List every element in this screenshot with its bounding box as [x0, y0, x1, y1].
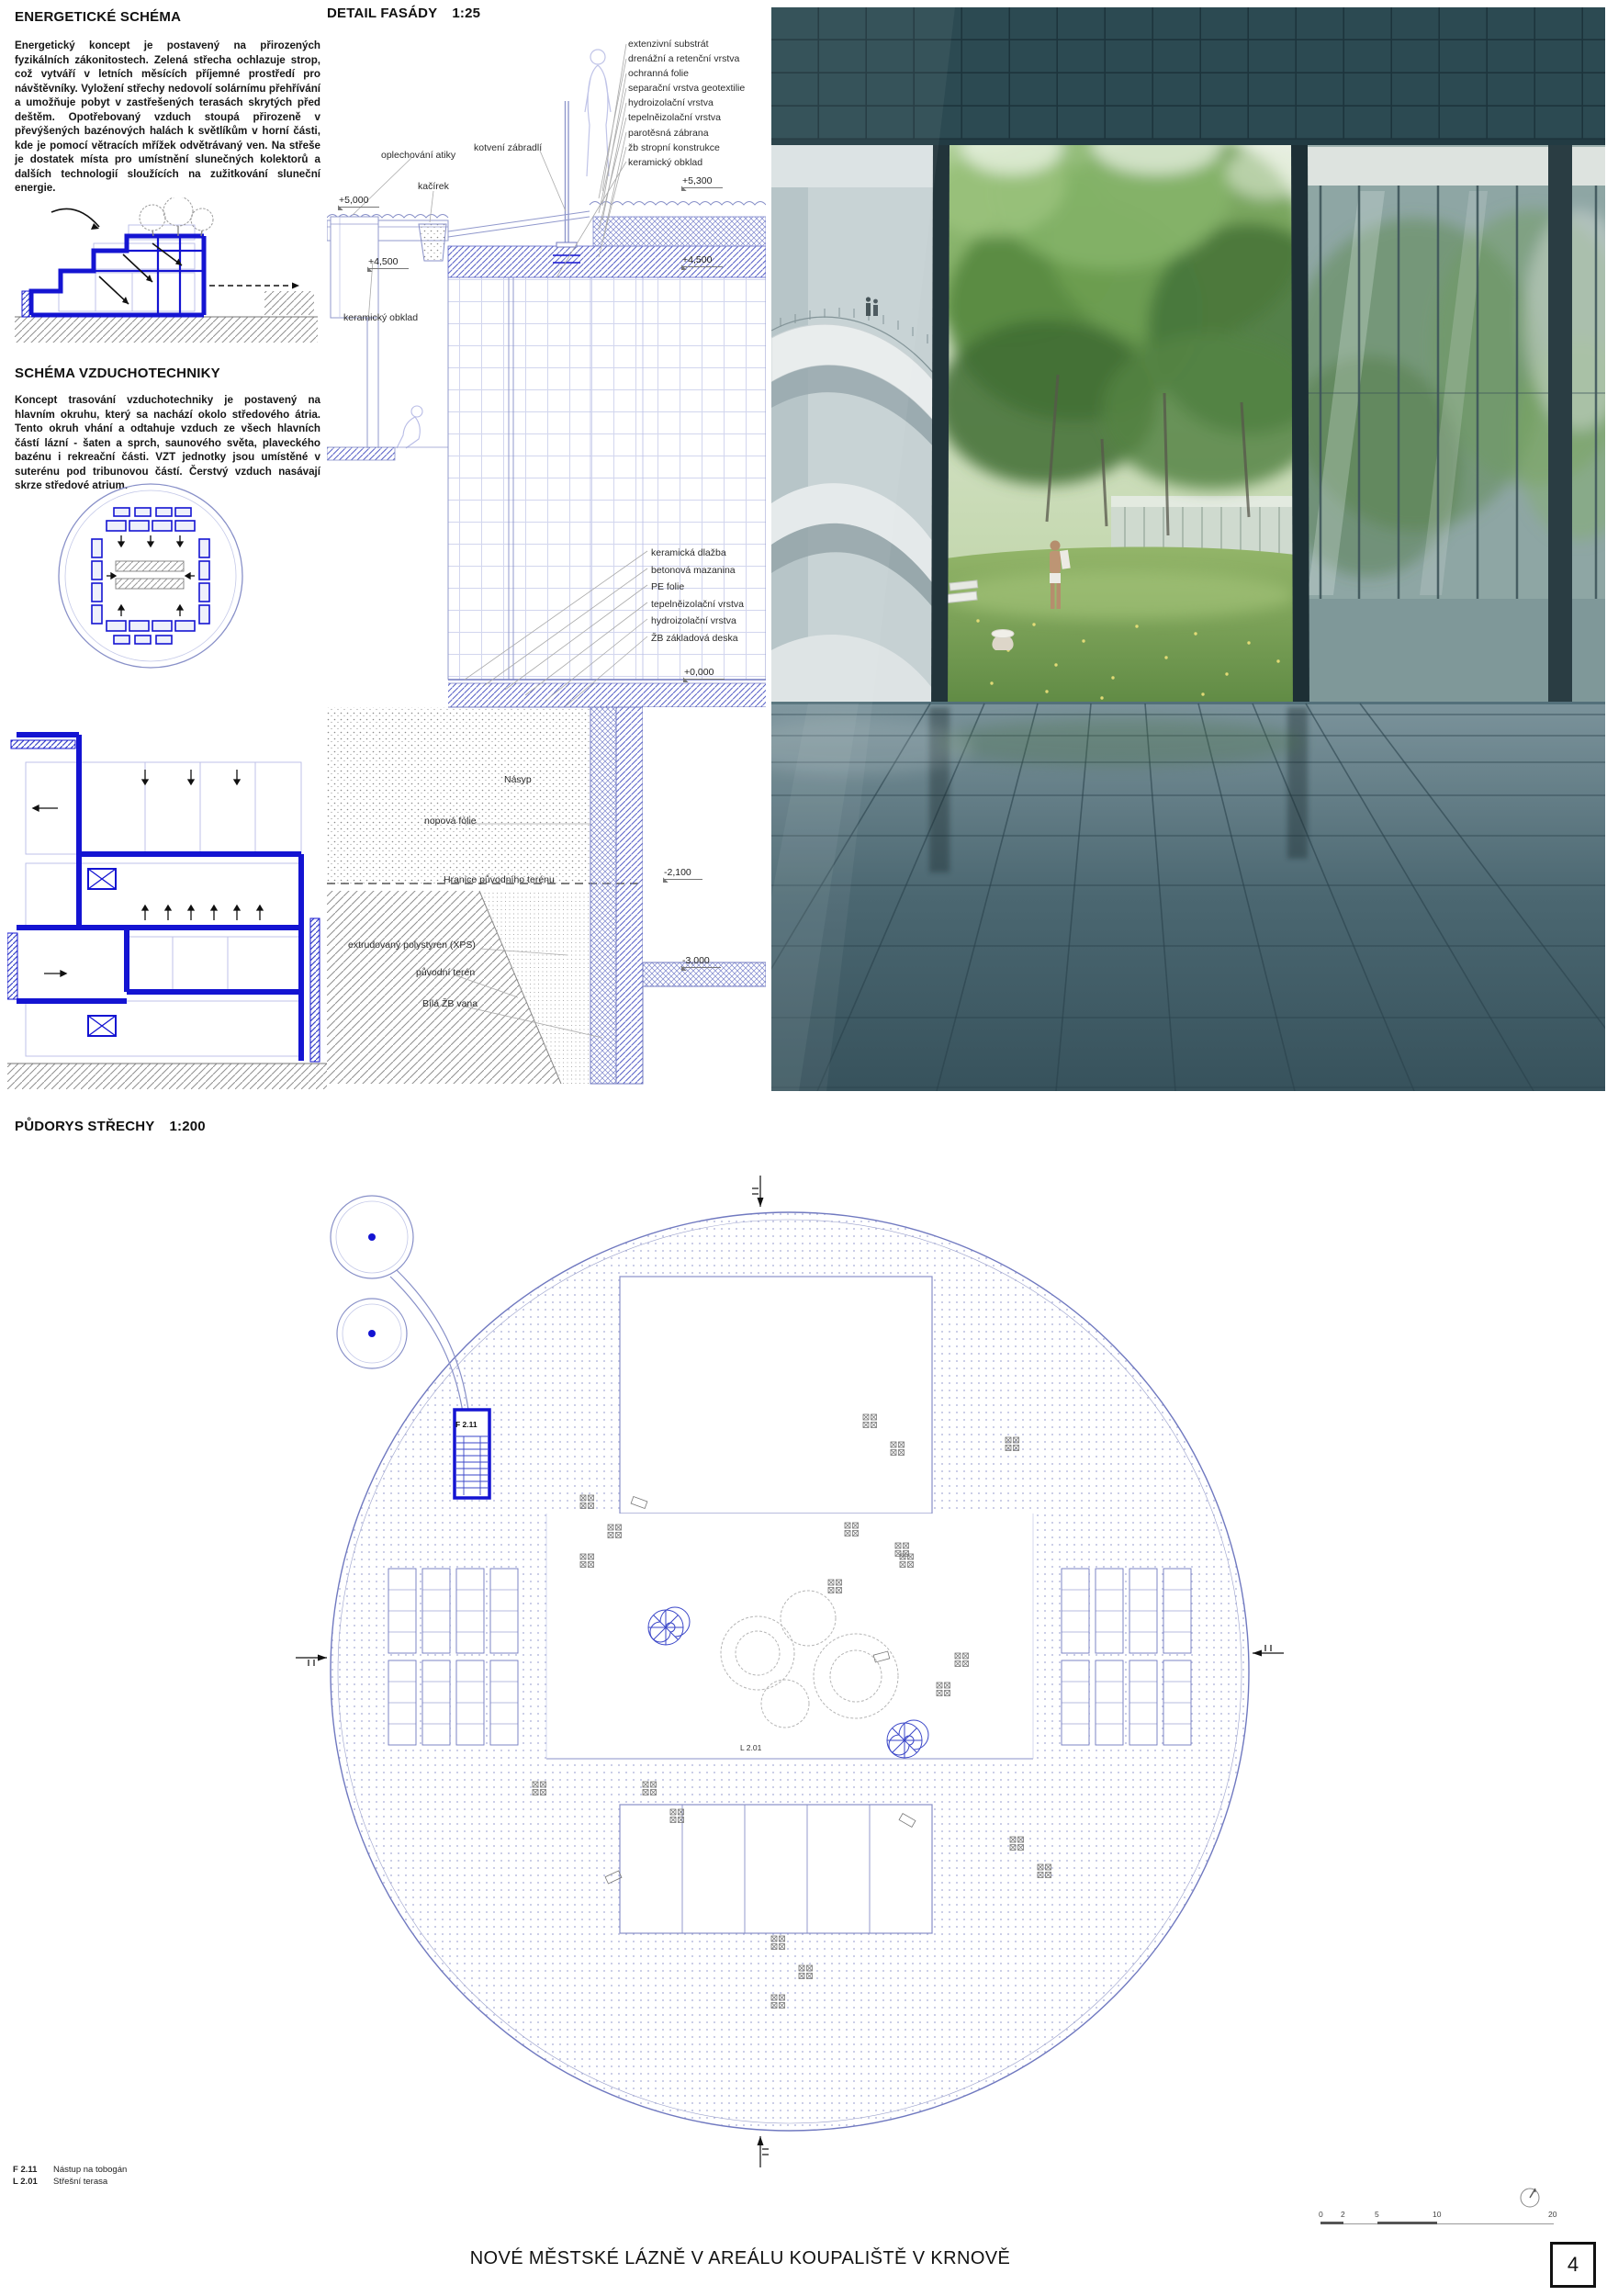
- courtyard-render-image: [771, 7, 1605, 1091]
- legend-row: L 2.01Střešní terasa: [13, 2176, 127, 2188]
- parapet: [331, 217, 378, 448]
- tree-canopy: [900, 113, 1350, 490]
- legend-code: L 2.01: [13, 2176, 53, 2188]
- floor-layer-list: keramická dlažba betonová mazanina PE fo…: [651, 545, 744, 647]
- right-frame-post: [1291, 143, 1309, 716]
- scale-bar: 0 2 5 10 20: [1320, 2210, 1554, 2228]
- roof-layer: keramický obklad: [628, 155, 745, 170]
- legend-row: F 2.11Nástup na tobogán: [13, 2164, 127, 2176]
- roof-layer: extenzivní substrát: [628, 37, 745, 51]
- floor-layer: ŽB základová deska: [651, 630, 744, 647]
- plan-terrace-label: L 2.01: [740, 1743, 761, 1752]
- section-marker-right: [1253, 1645, 1284, 1657]
- floor-slab: [448, 680, 766, 707]
- floor-layer: tepelněizolační vrstva: [651, 596, 744, 613]
- floor-layer: hydroizolační vrstva: [651, 613, 744, 630]
- rc-tub-wall: [590, 707, 766, 1084]
- elevation-plus-4500-left: +4,500: [367, 256, 409, 269]
- roof-plan-scale: 1:200: [169, 1119, 205, 1134]
- scale-bar-segment: [1320, 2222, 1343, 2224]
- presentation-board: { "board": { "title": "NOVÉ MĚSTSKÉ LÁZN…: [0, 0, 1607, 2296]
- flow-arrows: [107, 535, 195, 616]
- roof-layer: separační vrstva geotextilie: [628, 81, 745, 96]
- hvac-section-drawing: [7, 707, 327, 1093]
- legend-label: Střešní terasa: [53, 2177, 107, 2187]
- roof-plan-heading: PŮDORYS STŘECHY1:200: [15, 1119, 206, 1134]
- legend-label: Nástup na tobogán: [53, 2165, 127, 2175]
- roof-layer: tepelněizolační vrstva: [628, 110, 745, 125]
- scale-bar-segment: [1377, 2222, 1437, 2224]
- elevation-plus-4500-right: +4,500: [681, 254, 723, 267]
- seated-figure: [397, 406, 422, 448]
- corner-post: [1548, 143, 1572, 716]
- label-puvodni-teren: původní terén: [416, 967, 475, 978]
- elevation-zero: +0,000: [683, 667, 725, 680]
- section-marker-bottom: [758, 2136, 770, 2167]
- courtyard-garden: [900, 113, 1350, 715]
- facade-heading-text: DETAIL FASÁDY: [327, 6, 437, 21]
- energy-paragraph: Energetický koncept je postavený na přir…: [15, 39, 320, 196]
- floor-layer: keramická dlažba: [651, 545, 744, 562]
- board-title: NOVÉ MĚSTSKÉ LÁZNĚ V AREÁLU KOUPALIŠTĚ V…: [470, 2248, 1011, 2269]
- roof-layer: žb stropní konstrukce: [628, 141, 745, 155]
- page-number-box: 4: [1550, 2242, 1596, 2288]
- tiled-floor: [771, 702, 1605, 1091]
- section-marker-top: [752, 1176, 764, 1207]
- plan-stair-label: F 2.11: [455, 1420, 478, 1429]
- label-bila-vana: Bílá ŽB vana: [422, 998, 478, 1009]
- railing-post: [566, 101, 569, 244]
- drawing-legend: F 2.11Nástup na tobogán L 2.01Střešní te…: [13, 2164, 127, 2188]
- scale-tick-20: 20: [1548, 2210, 1556, 2219]
- energy-heading: ENERGETICKÉ SCHÉMA: [15, 9, 181, 25]
- hvac-heading: SCHÉMA VZDUCHOTECHNIKY: [15, 366, 220, 381]
- section-marker-left: [296, 1655, 327, 1667]
- vzt-unit-boxes: [88, 869, 116, 1036]
- roof-layer: hydroizolační vrstva: [628, 96, 745, 110]
- skylight-rect-bottom: [620, 1805, 932, 1933]
- blue-section-outline: [31, 236, 204, 315]
- air-arrows: [33, 770, 263, 976]
- elevation-plus-5000: +5,000: [338, 195, 379, 208]
- roof-plan-heading-text: PŮDORYS STŘECHY: [15, 1119, 154, 1134]
- scale-tick-5: 5: [1375, 2210, 1379, 2219]
- scale-bar-line: [1320, 2223, 1554, 2224]
- facade-scale: 1:25: [452, 6, 480, 21]
- scale-tick-0: 0: [1319, 2210, 1323, 2219]
- facade-heading: DETAIL FASÁDY1:25: [327, 6, 480, 21]
- airflow-arrows: [51, 208, 299, 304]
- roof-plan-drawing: [257, 1139, 1322, 2204]
- label-kacirek: kačírek: [418, 181, 449, 192]
- label-keramicky-obklad: keramický obklad: [343, 312, 418, 323]
- label-xps: extrudovaný polystyren (XPS): [348, 940, 476, 951]
- sitting-person: [992, 630, 1014, 651]
- backfill-stipple: [327, 707, 590, 884]
- roof-layer: drenážní a retenční vrstva: [628, 51, 745, 66]
- floor-layer: betonová mazanina: [651, 562, 744, 580]
- elevation-minus-3000: -3,000: [681, 955, 721, 968]
- floor-layer: PE folie: [651, 579, 744, 596]
- scale-tick-2: 2: [1341, 2210, 1345, 2219]
- elevation-plus-5300: +5,300: [681, 175, 723, 188]
- label-hranice: Hranice původního terénu: [444, 874, 555, 885]
- gravel-strip: [419, 224, 446, 261]
- ground-hatch: [15, 317, 318, 343]
- left-frame-post: [931, 143, 950, 716]
- pool-bars: [116, 561, 184, 589]
- roof-insulation-block: [593, 217, 766, 246]
- roof-layer: ochranná folie: [628, 66, 745, 81]
- label-oplechovani: oplechování atiky: [381, 150, 455, 161]
- page-number: 4: [1568, 2253, 1579, 2277]
- skylight-rect-top: [620, 1277, 932, 1514]
- label-kotveni: kotvení zábradlí: [474, 142, 542, 153]
- north-arrow-icon: [1517, 2184, 1543, 2210]
- legend-code: F 2.11: [13, 2164, 53, 2176]
- hvac-circular-diagram: [48, 473, 253, 679]
- label-nopova-folie: nopová fólie: [424, 816, 477, 827]
- terrace-slab: [327, 447, 395, 460]
- blue-structure: [17, 735, 301, 1061]
- tree-sketch: [140, 197, 213, 231]
- roof-layer-list: extenzivní substrát drenážní a retenční …: [628, 37, 745, 170]
- roof-layer: parotěsná zábrana: [628, 126, 745, 141]
- energy-schematic-drawing: [15, 197, 318, 346]
- elevation-minus-2100: -2,100: [663, 867, 702, 880]
- label-nasyp: Násyp: [504, 774, 532, 785]
- scale-tick-10: 10: [1433, 2210, 1441, 2219]
